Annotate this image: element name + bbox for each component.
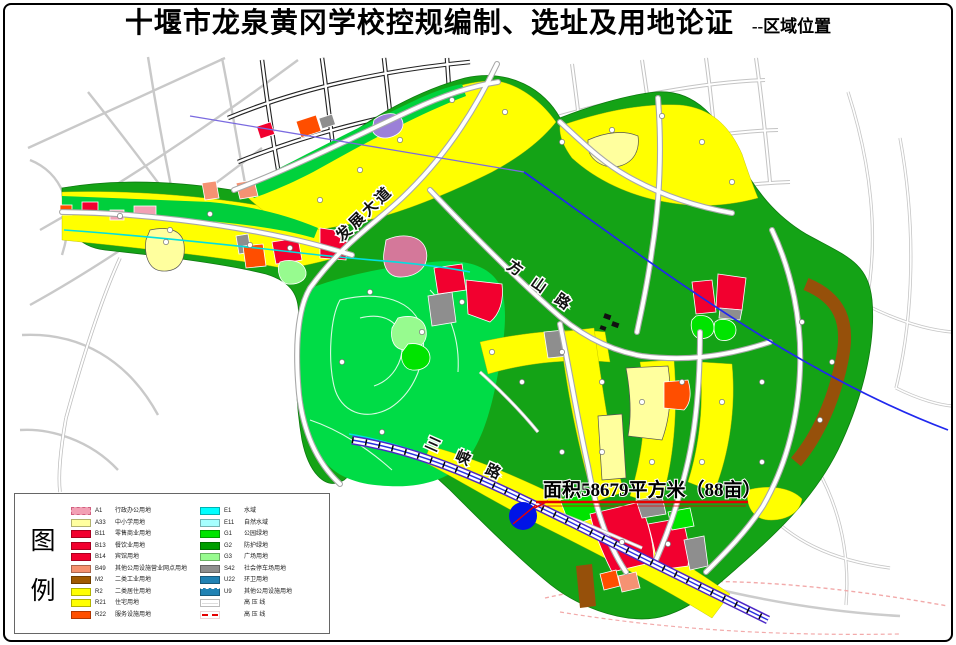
legend-item: B14宾馆用地 <box>71 553 200 562</box>
legend-right-column: E1水域 E11自然水域 G1公园绿地 G2防护绿地 G3广场用地 S42社会停… <box>200 507 329 633</box>
legend-swatch <box>71 576 91 584</box>
legend-item: G2防护绿地 <box>200 542 329 551</box>
legend-swatch <box>200 565 220 573</box>
legend-swatch <box>71 599 91 607</box>
legend-heading-char-2: 例 <box>30 571 55 607</box>
area-annotation-text: 面积58679平方米（88亩） <box>543 478 762 501</box>
legend-item: G1公园绿地 <box>200 530 329 539</box>
legend-item: R21住宅用地 <box>71 599 200 608</box>
title-bar: 十堰市龙泉黄冈学校控规编制、选址及用地论证 --区域位置 <box>0 9 956 40</box>
legend-item: R2二类居住用地 <box>71 588 200 597</box>
legend-swatch-highvoltage-line <box>200 599 220 607</box>
legend-left-column: A1行政办公用地 A33中小学用地 B11零售商业用地 B13餐饮业用地 B14… <box>71 507 200 633</box>
legend-box: 图 例 A1行政办公用地 A33中小学用地 B11零售商业用地 B13餐饮业用地… <box>14 493 330 634</box>
legend-item: 高 压 线 <box>200 599 329 608</box>
legend-swatch <box>200 507 220 515</box>
legend-heading-char-1: 图 <box>30 521 55 557</box>
legend-item: B11零售商业用地 <box>71 530 200 539</box>
legend-swatch <box>200 530 220 538</box>
legend-heading: 图 例 <box>15 494 71 633</box>
legend-item: E1水域 <box>200 507 329 516</box>
legend-item: U9其他公用设施用地 <box>200 588 329 597</box>
legend-swatch <box>200 553 220 561</box>
page-subtitle: --区域位置 <box>752 12 831 40</box>
legend-item: A33中小学用地 <box>71 519 200 528</box>
planning-map-page: { "page": { "title": "十堰市龙泉黄冈学校控规编制、选址及用… <box>0 0 956 645</box>
legend-item: A1行政办公用地 <box>71 507 200 516</box>
legend-swatch <box>71 519 91 527</box>
legend-item: E11自然水域 <box>200 519 329 528</box>
legend-swatch <box>200 519 220 527</box>
legend-item: B49其他公用设施营业网点用地 <box>71 565 200 574</box>
legend-swatch <box>71 530 91 538</box>
legend-item: 高 压 线 <box>200 611 329 620</box>
legend-swatch <box>200 542 220 550</box>
legend-item: M2二类工业用地 <box>71 576 200 585</box>
legend-item: B13餐饮业用地 <box>71 542 200 551</box>
legend-swatch <box>71 588 91 596</box>
legend-item: R22服务设施用地 <box>71 611 200 620</box>
page-title: 十堰市龙泉黄冈学校控规编制、选址及用地论证 <box>125 9 734 40</box>
legend-item: S42社会停车场用地 <box>200 565 329 574</box>
legend-swatch <box>71 553 91 561</box>
legend-swatch <box>71 611 91 619</box>
legend-item: G3广场用地 <box>200 553 329 562</box>
legend-swatch-highvoltage-line-red <box>200 611 220 619</box>
legend-columns: A1行政办公用地 A33中小学用地 B11零售商业用地 B13餐饮业用地 B14… <box>71 494 329 633</box>
legend-swatch <box>200 576 220 584</box>
legend-item: U22环卫用地 <box>200 576 329 585</box>
legend-swatch <box>71 507 91 515</box>
legend-swatch <box>71 565 91 573</box>
legend-swatch <box>71 542 91 550</box>
legend-swatch <box>200 588 220 596</box>
